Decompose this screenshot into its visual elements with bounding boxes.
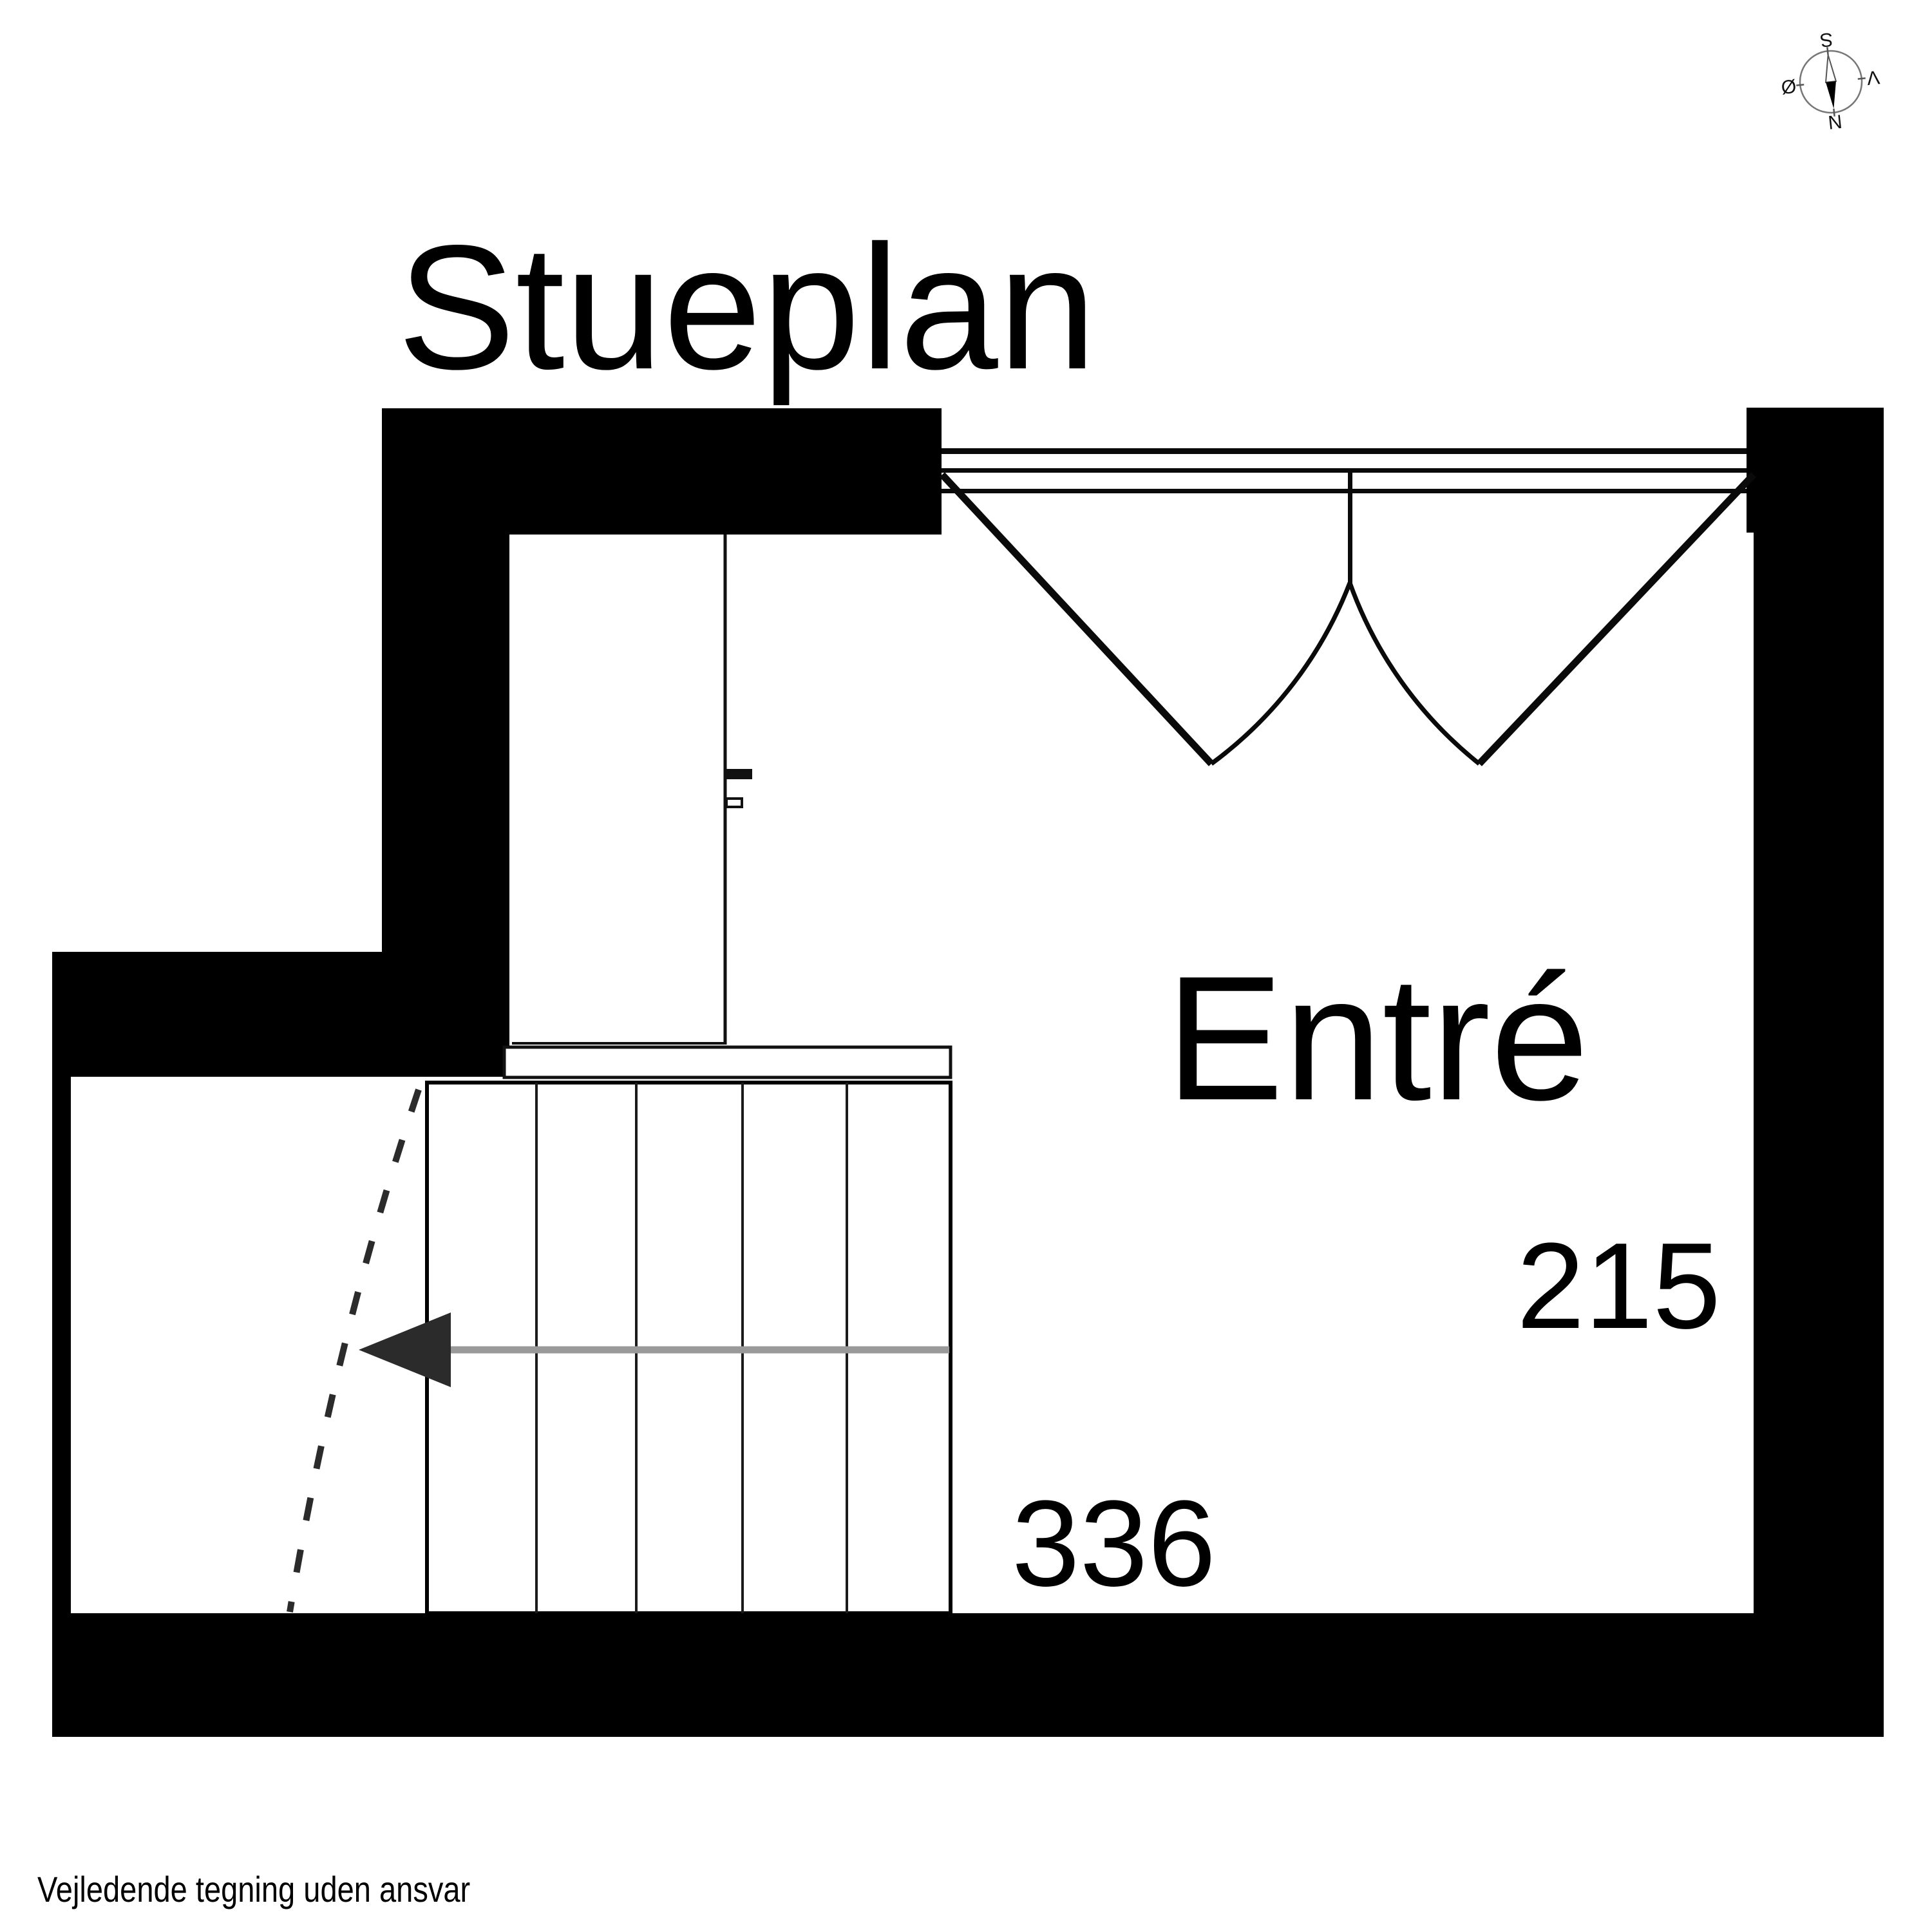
door-swing-arc-left <box>1211 583 1350 764</box>
door-frame-line-outer <box>942 448 1747 454</box>
disclaimer-text: Vejledende tegning uden ansvar <box>37 1871 470 1908</box>
compass-icon: N S Ø V <box>1776 24 1885 137</box>
room-dimension-height: 215 <box>1517 1225 1721 1347</box>
page-title: Stueplan <box>397 219 1097 396</box>
wall-left-thin <box>52 1077 71 1613</box>
wall-top-left <box>382 408 942 535</box>
door-swing-arc-right <box>1350 583 1479 764</box>
wall-bottom <box>52 1613 1884 1737</box>
door-frame-line-middle <box>942 468 1747 473</box>
compass-north-label: N <box>1827 110 1843 133</box>
room-dimension-width: 336 <box>1012 1482 1216 1605</box>
wall-mid-left-horizontal <box>52 952 509 1077</box>
walls <box>52 408 1884 1737</box>
staircase <box>290 1083 951 1613</box>
stair-direction-arrow-icon <box>359 1312 451 1387</box>
room-label-entre: Entré <box>1166 950 1589 1127</box>
compass-south-label: S <box>1819 28 1833 51</box>
door-frame-line-inner <box>942 489 1747 493</box>
door-leaf-right <box>1479 475 1754 764</box>
door-center-post <box>1348 468 1352 584</box>
hinge-marker-icon <box>726 769 752 807</box>
wall-top-right-corner <box>1747 408 1884 533</box>
compass-east-label: Ø <box>1780 75 1797 97</box>
wall-right <box>1754 533 1884 1613</box>
interior-band-fill <box>512 535 726 1045</box>
door-leaf-left <box>942 475 1211 764</box>
stair-threshold <box>504 1047 951 1077</box>
compass-west-label: V <box>1866 66 1880 89</box>
floorplan-page: N S Ø V Stueplan Entré 215 336 Vejledend… <box>0 0 1932 1932</box>
entrance-double-door <box>942 448 1754 764</box>
interior-wall-band <box>512 535 726 1045</box>
